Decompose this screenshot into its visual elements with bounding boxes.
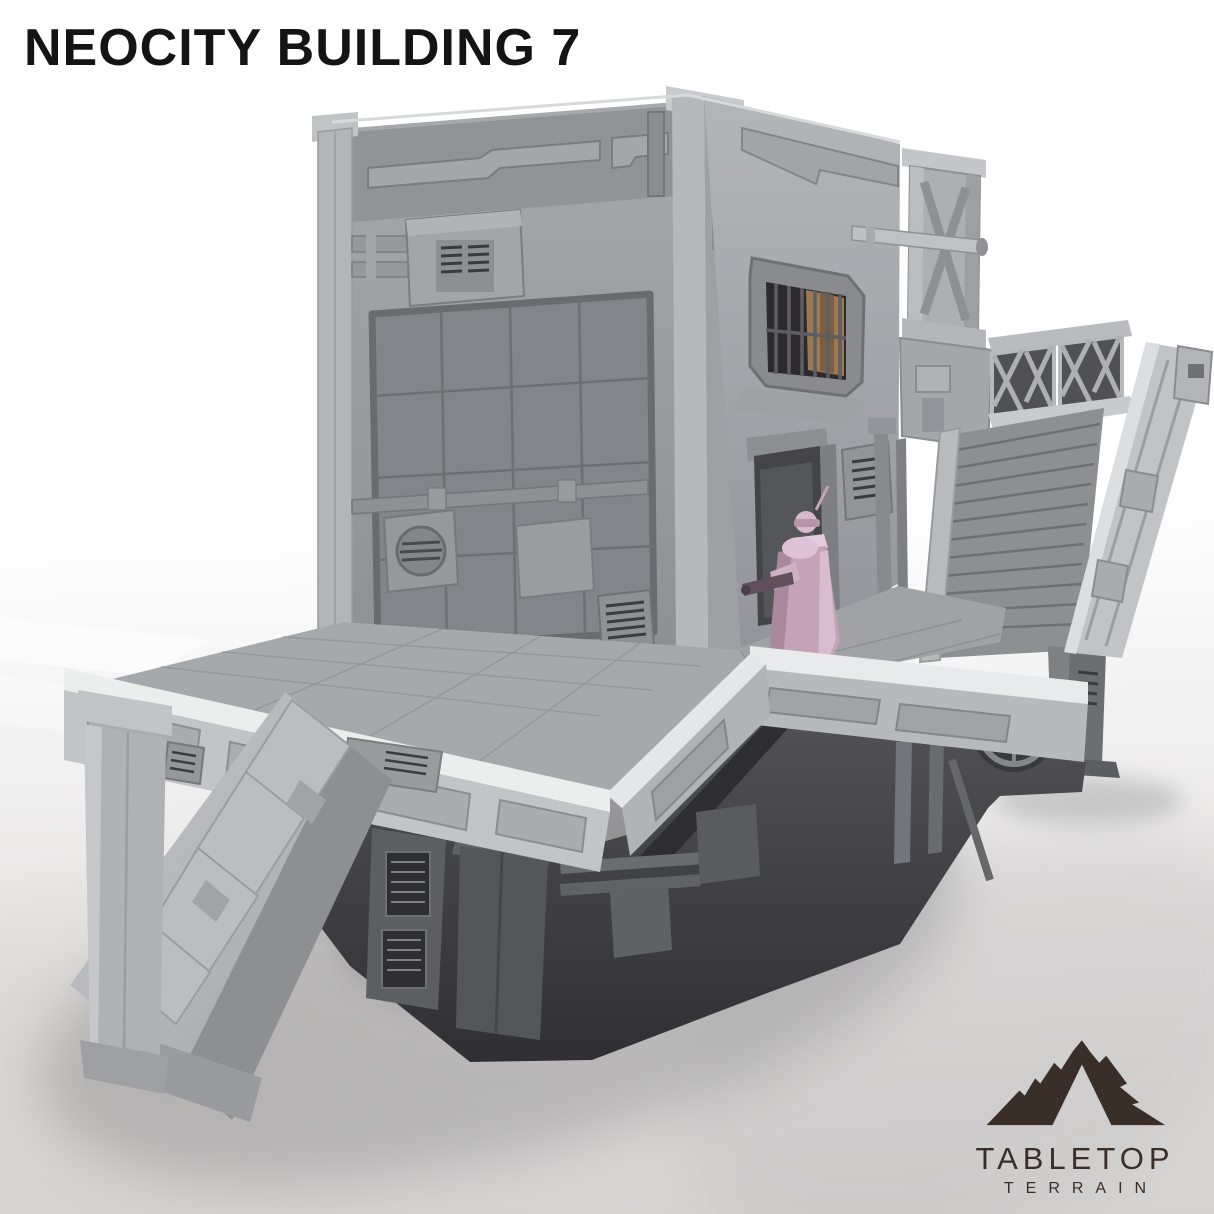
junction-box xyxy=(516,518,594,598)
brand-logo: TABLETOP TERRAIN xyxy=(962,1035,1188,1198)
platform-pillar xyxy=(78,690,172,1094)
main-building xyxy=(312,86,988,664)
lattice-railing xyxy=(988,320,1136,432)
brand-subname: TERRAIN xyxy=(1004,1180,1158,1198)
product-image: NEOCITY BUILDING 7 xyxy=(0,0,1214,1214)
mountain-icon xyxy=(969,1035,1181,1139)
support-tower xyxy=(900,148,992,448)
fan-box xyxy=(384,510,458,592)
barred-window xyxy=(732,258,866,424)
brand-name: TABLETOP xyxy=(975,1141,1174,1177)
building-render xyxy=(0,0,1214,1214)
